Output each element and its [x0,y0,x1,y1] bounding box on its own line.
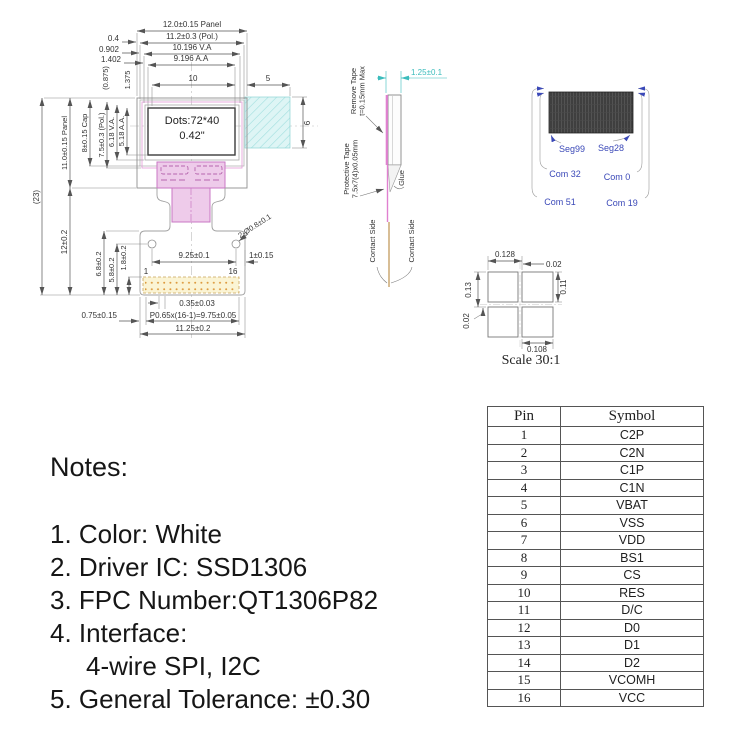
dim-68: 6.8±0.2 [94,252,103,277]
left-dimensions: (23) 11.0±0.15 Panel 8±0.15 Cap 7.5±0.3 … [32,98,147,295]
pin-number: 15 [488,672,561,690]
side-view: 1.25±0.1 Remove Tape t=0.15mm Max Protec… [342,66,447,287]
note-item-continued: 4-wire SPI, I2C [86,650,378,683]
pin16-label: 16 [229,267,238,276]
pin-symbol: VSS [561,514,704,532]
dim-10: 10 [189,74,198,83]
pin-symbol: VCC [561,689,704,707]
table-row: 7VDD [488,532,704,550]
dim-va-height: 6.18 V.A. [107,117,116,147]
note-item: 1. Color: White [50,518,378,551]
note-item: 4. Interface: [50,617,378,650]
dim-1375: 1.375 [123,71,132,90]
table-row: 8BS1 [488,549,704,567]
dim-6: 6 [303,120,312,125]
table-row: 3C1P [488,462,704,480]
dim-va-width: 10.196 V.A [173,43,213,52]
pin-number: 11 [488,602,561,620]
dim-pol-height: 7.5±0.3 (Pol.) [97,112,106,157]
dim-pitch: P0.65x(16-1)=9.75±0.05 [150,311,237,320]
seg-left-label: Seg99 [559,144,585,154]
dim-035: 0.35±0.03 [179,299,215,308]
pin-symbol: VCOMH [561,672,704,690]
dim-aa-width: 9.196 A.A [174,54,209,63]
table-row: 9CS [488,567,704,585]
glass-stack [388,95,401,165]
note-item: 5. General Tolerance: ±0.30 [50,683,378,716]
fpc-hole-left [148,240,156,248]
pin-symbol: CS [561,567,704,585]
glue-label: Glue [397,170,406,186]
pin-number: 3 [488,462,561,480]
contact-side-left-label: Contact Side [368,220,377,263]
dim-013: 0.13 [464,282,473,298]
dim-panel-height: 11.0±0.15 Panel [60,116,69,170]
scale-label: Scale 30:1 [502,353,561,368]
pin-table-header-row: Pin Symbol [488,407,704,427]
pin-number: 10 [488,584,561,602]
table-row: 16VCC [488,689,704,707]
contact-pad-strip [143,277,239,293]
tape-overlap-region [245,97,290,148]
table-row: 5VBAT [488,497,704,515]
dim-18: 1.8±0.2 [119,246,128,271]
pin-symbol: RES [561,584,704,602]
table-row: 13D1 [488,637,704,655]
pin-symbol: C1N [561,479,704,497]
dim-925: 9.25±0.1 [178,251,210,260]
technical-drawing: Dots:72*40 0.42" 1 16 [0,0,738,395]
note-item: 2. Driver IC: SSD1306 [50,551,378,584]
pin-number: 12 [488,619,561,637]
table-row: 14D2 [488,654,704,672]
symbol-column-header: Symbol [561,407,704,427]
display-size-label: 0.42" [179,130,204,142]
pin-symbol: C2P [561,427,704,445]
pin-column-header: Pin [488,407,561,427]
dim-0128: 0.128 [495,250,516,259]
com-inner-left-label: Com 32 [549,169,581,179]
com-inner-right-label: Com 0 [604,172,631,182]
table-row: 1C2P [488,427,704,445]
front-view: Dots:72*40 0.42" 1 16 [32,20,318,338]
table-row: 10RES [488,584,704,602]
dim-total-height: (23) [32,190,41,205]
dim-1402: 1.402 [101,55,122,64]
dim-aa-height: 5.18 A.A. [117,116,126,146]
pin-number: 16 [488,689,561,707]
table-row: 11D/C [488,602,704,620]
pin-number: 7 [488,532,561,550]
mapping-view: Seg99 Seg28 Com 32 Com 0 Com 51 Com 19 [532,89,649,209]
top-dimensions: 12.0±0.15 Panel 11.2±0.3 (Pol.) 10.196 V… [99,20,290,107]
display-pixel-area [549,92,633,133]
pin-symbol: BS1 [561,549,704,567]
thickness-dimension: 1.25±0.1 [377,68,447,93]
dim-075: 0.75±0.15 [81,311,117,320]
pin-symbol: D0 [561,619,704,637]
pin-symbol: C1P [561,462,704,480]
display-dots-label: Dots:72*40 [165,115,219,127]
pin-table: Pin Symbol 1C2P 2C2N 3C1P 4C1N 5VBAT 6VS… [487,406,704,707]
dim-04: 0.4 [108,34,120,43]
table-row: 4C1N [488,479,704,497]
pin-number: 9 [488,567,561,585]
pin-number: 5 [488,497,561,515]
notes-section: Notes: 1. Color: White 2. Driver IC: SSD… [50,452,378,716]
datasheet-page: Dots:72*40 0.42" 1 16 [0,0,738,738]
pin-number: 1 [488,427,561,445]
dim-5: 5 [266,74,271,83]
dim-0875: (0.875) [101,66,110,90]
dim-pol-width: 11.2±0.3 (Pol.) [166,32,218,41]
pin-symbol: VBAT [561,497,704,515]
protective-tape-label-2: 7.5x7(4)x0.05mm [351,140,360,198]
dim-cap-height: 8±0.15 Cap [80,114,89,153]
dim-fpc-length: 12±0.2 [60,229,69,254]
fpc-hole-right [232,240,240,248]
dim-0902: 0.902 [99,45,120,54]
table-row: 2C2N [488,444,704,462]
detail-centerlines [480,262,562,348]
right-dimension: 6 [292,97,312,148]
pin-symbol: D/C [561,602,704,620]
pin-number: 6 [488,514,561,532]
table-row: 6VSS [488,514,704,532]
dim-1125: 11.25±0.2 [176,324,211,333]
dim-58: 5.8±0.2 [107,258,116,283]
com-outer-right-label: Com 19 [606,198,638,208]
com-outer-left-label: Com 51 [544,197,576,207]
table-row: 12D0 [488,619,704,637]
pin-number: 8 [488,549,561,567]
pin-number: 4 [488,479,561,497]
pin-number: 13 [488,637,561,655]
pin1-label: 1 [144,267,149,276]
dim-thickness: 1.25±0.1 [411,68,443,77]
note-item: 3. FPC Number:QT1306P82 [50,584,378,617]
pin-number: 14 [488,654,561,672]
dim-panel-width: 12.0±0.15 Panel [163,20,221,29]
notes-title: Notes: [50,452,378,483]
notes-list: 1. Color: White 2. Driver IC: SSD1306 3.… [50,518,378,716]
pin-symbol: C2N [561,444,704,462]
pin-symbol: VDD [561,532,704,550]
remove-tape-label-2: t=0.15mm Max [358,66,367,116]
contact-side-right-label: Contact Side [407,220,416,263]
pin-number: 2 [488,444,561,462]
dim-1: 1±0.15 [249,251,274,260]
pixel-detail-view: 0.128 0.02 0.13 0.11 0.02 0.108 Scale 30… [462,250,568,368]
dim-011: 0.11 [559,279,568,295]
dim-002-top: 0.02 [546,260,562,269]
pin-symbol: D2 [561,654,704,672]
dim-002-left: 0.02 [462,313,471,329]
dim-holes: 2-Ø0.8±0.1 [236,212,272,240]
pin-symbol: D1 [561,637,704,655]
table-row: 15VCOMH [488,672,704,690]
seg-right-label: Seg28 [598,143,624,153]
fpc-pink-film [157,162,225,222]
